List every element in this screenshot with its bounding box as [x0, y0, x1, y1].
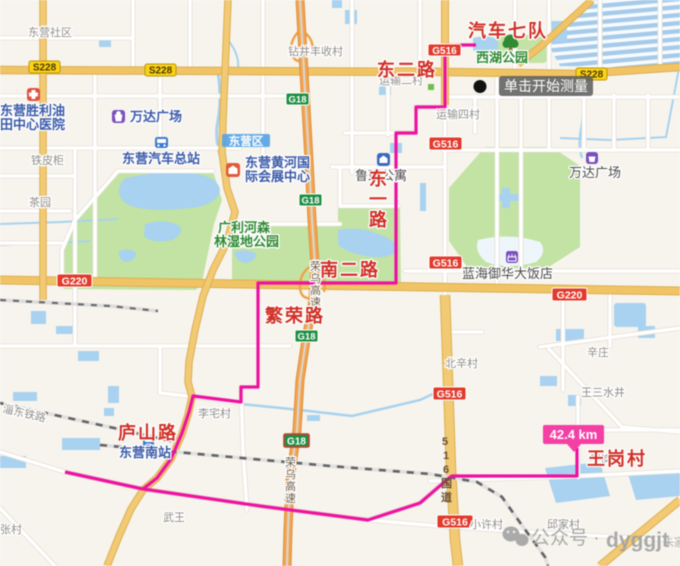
svg-text:西湖公园: 西湖公园 [476, 50, 528, 65]
svg-text:武王: 武王 [163, 511, 185, 524]
svg-text:南二路: 南二路 [320, 259, 380, 280]
svg-text:G220: G220 [557, 290, 583, 302]
svg-text:小许村: 小许村 [470, 517, 503, 531]
svg-text:李宅村: 李宅村 [198, 406, 231, 420]
svg-text:东营黄河国: 东营黄河国 [245, 155, 310, 170]
svg-text:林湿地公园: 林湿地公园 [214, 234, 279, 249]
svg-text:G516: G516 [433, 257, 459, 269]
svg-text:茶园: 茶园 [29, 196, 51, 209]
svg-text:G18: G18 [289, 95, 307, 106]
svg-text:G516: G516 [432, 46, 457, 57]
svg-text:铁皮柜: 铁皮柜 [31, 154, 64, 167]
svg-text:蓝海御华大饭店: 蓝海御华大饭店 [462, 266, 553, 281]
svg-text:繁荣路: 繁荣路 [264, 305, 325, 326]
svg-text:荣乌高速: 荣乌高速 [285, 456, 296, 505]
svg-text:G516: G516 [442, 516, 468, 528]
svg-text:公众号 ·: 公众号 · [531, 527, 600, 549]
svg-text:东营南站: 东营南站 [119, 445, 171, 460]
svg-text:G516: G516 [433, 138, 459, 150]
svg-text:东营区: 东营区 [229, 134, 264, 148]
svg-text:北辛村: 北辛村 [445, 356, 478, 370]
svg-text:东二路: 东二路 [377, 59, 437, 80]
svg-text:G516: G516 [437, 388, 463, 400]
svg-text:万达广场: 万达广场 [129, 109, 182, 124]
svg-text:dyggjt: dyggjt [606, 529, 669, 552]
svg-text:42.4 km: 42.4 km [550, 427, 598, 442]
svg-text:际会展中心: 际会展中心 [245, 169, 310, 184]
svg-text:王三水井: 王三水井 [581, 385, 625, 399]
svg-text:王岗村: 王岗村 [587, 448, 647, 469]
svg-text:张村: 张村 [0, 522, 22, 536]
svg-text:运输四村: 运输四村 [436, 107, 480, 121]
svg-text:广利河森: 广利河森 [218, 220, 271, 235]
svg-text:万达广场: 万达广场 [569, 165, 621, 180]
svg-text:东一路: 东一路 [369, 168, 389, 230]
svg-text:辛庄: 辛庄 [587, 345, 609, 359]
svg-text:钻井丰收村: 钻井丰收村 [288, 44, 343, 58]
svg-text:S228: S228 [149, 66, 173, 77]
svg-text:汽车七队: 汽车七队 [468, 20, 548, 41]
svg-text:G18: G18 [302, 196, 320, 207]
svg-text:田中心医院: 田中心医院 [0, 117, 65, 132]
svg-text:东营汽车总站: 东营汽车总站 [122, 151, 200, 166]
svg-text:G18: G18 [298, 332, 316, 343]
svg-text:东营胜利油: 东营胜利油 [0, 103, 65, 118]
svg-text:东营社区: 东营社区 [28, 25, 72, 39]
svg-text:庐山路: 庐山路 [118, 422, 178, 443]
svg-text:单击开始测量: 单击开始测量 [504, 78, 588, 94]
svg-text:G18: G18 [287, 436, 306, 447]
svg-text:朱家: 朱家 [663, 535, 680, 549]
svg-text:G220: G220 [62, 276, 88, 288]
svg-text:S228: S228 [33, 63, 57, 74]
